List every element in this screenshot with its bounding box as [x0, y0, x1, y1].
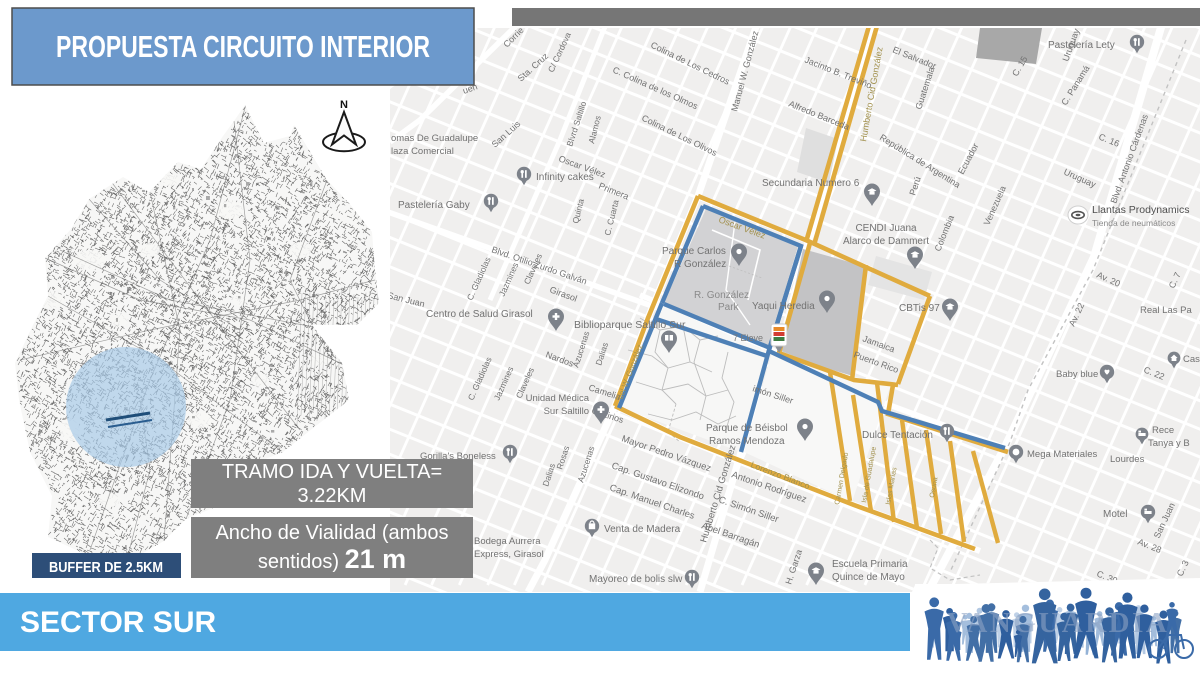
svg-text:Infinity cakes: Infinity cakes	[536, 172, 594, 183]
svg-text:PROPUESTA CIRCUITO INTERIOR: PROPUESTA CIRCUITO INTERIOR	[56, 29, 430, 64]
svg-text:Park: Park	[718, 302, 740, 313]
svg-text:Pastelería Lety: Pastelería Lety	[1048, 40, 1115, 51]
svg-text:R. González: R. González	[694, 290, 749, 301]
svg-text:Real Las Pa: Real Las Pa	[1140, 305, 1192, 316]
svg-text:BUFFER DE 2.5KM: BUFFER DE 2.5KM	[49, 558, 163, 575]
svg-text:R González: R González	[674, 259, 726, 270]
svg-text:VANGUARDIA: VANGUARDIA	[947, 607, 1170, 639]
svg-text:Parque Carlos: Parque Carlos	[662, 246, 726, 257]
svg-text:Lourdes: Lourdes	[1110, 454, 1145, 465]
svg-text:Escuela Primaria: Escuela Primaria	[832, 559, 908, 570]
svg-text:7 Eleve: 7 Eleve	[733, 333, 763, 343]
svg-text:Venta de Madera: Venta de Madera	[604, 524, 681, 535]
svg-text:Rece: Rece	[1152, 425, 1174, 436]
svg-text:SECTOR SUR: SECTOR SUR	[20, 606, 216, 639]
svg-text:Centro de Salud Girasol: Centro de Salud Girasol	[426, 309, 533, 320]
svg-text:Secundaria Numero 6: Secundaria Numero 6	[762, 178, 860, 189]
svg-text:CENDI Juana: CENDI Juana	[855, 223, 917, 234]
svg-text:CBTis 97: CBTis 97	[899, 303, 940, 314]
svg-text:Mayoreo de bolis slw: Mayoreo de bolis slw	[589, 574, 683, 585]
svg-text:laza Comercial: laza Comercial	[391, 146, 454, 157]
svg-text:Parque de Béisbol: Parque de Béisbol	[706, 423, 788, 434]
svg-text:Llantas Prodynamics: Llantas Prodynamics	[1092, 204, 1189, 216]
svg-text:Alarco de Dammert: Alarco de Dammert	[843, 236, 929, 247]
svg-text:Tanya y B: Tanya y B	[1148, 438, 1190, 449]
svg-text:Mega Materiales: Mega Materiales	[1027, 449, 1097, 460]
svg-text:Pastelería Gaby: Pastelería Gaby	[398, 200, 470, 211]
svg-text:Baby blue: Baby blue	[1056, 369, 1098, 380]
svg-text:Motel: Motel	[1103, 509, 1127, 520]
svg-text:Bodega Aurrera: Bodega Aurrera	[474, 536, 541, 547]
svg-text:Sur Saltillo: Sur Saltillo	[544, 406, 589, 417]
svg-text:Dulce Tentación: Dulce Tentación	[862, 430, 933, 441]
svg-text:Biblioparque Saltillo Sur: Biblioparque Saltillo Sur	[574, 319, 686, 331]
svg-text:3.22KM: 3.22KM	[298, 485, 367, 507]
svg-text:omas De Guadalupe: omas De Guadalupe	[391, 133, 478, 144]
svg-text:Yaqui Heredia: Yaqui Heredia	[752, 301, 815, 312]
svg-text:Unidad Médica: Unidad Médica	[526, 393, 590, 404]
svg-text:Express, Girasol: Express, Girasol	[474, 549, 544, 560]
svg-text:Casa: Casa	[1183, 354, 1200, 365]
svg-text:Quince de Mayo: Quince de Mayo	[832, 572, 905, 583]
svg-text:Ramos Mendoza: Ramos Mendoza	[709, 436, 785, 447]
svg-text:Ancho de Vialidad (ambos: Ancho de Vialidad (ambos	[215, 522, 448, 544]
svg-text:Tienda de neumáticos: Tienda de neumáticos	[1092, 218, 1175, 228]
svg-text:TRAMO IDA Y VUELTA=: TRAMO IDA Y VUELTA=	[222, 461, 442, 483]
